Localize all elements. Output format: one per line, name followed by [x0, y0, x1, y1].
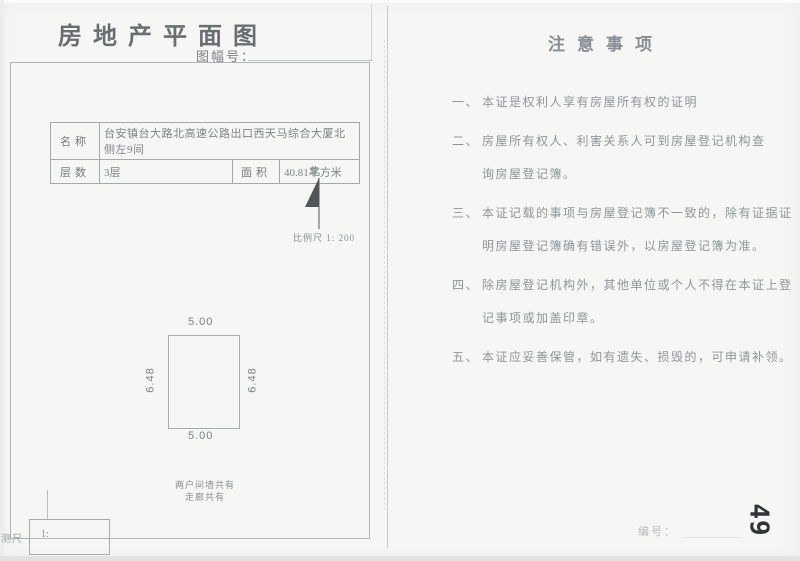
plan-note-line1: 两户间墙共有 — [150, 479, 260, 491]
sheet-number-blank-line — [248, 60, 372, 61]
note-text: 记事项或加盖印章。 — [482, 302, 788, 335]
note-text: 本证记载的事项与房屋登记簿不一致的，除有证据证 — [482, 197, 788, 230]
notes-list: 一、 本证是权利人享有房屋所有权的证明 二、 房屋所有权人、利害关系人可到房屋登… — [452, 86, 788, 380]
plot-dimension-right: 6.48 — [247, 367, 259, 392]
north-arrow-icon — [297, 175, 337, 236]
scan-edge-bottom — [0, 556, 800, 561]
note-text: 本证应妥善保管，如有遗失、损毁的，可申请补领。 — [482, 341, 788, 374]
corner-label: 测尺 — [1, 530, 23, 545]
note-item-4: 四、 除房屋登记机构外，其他单位或个人不得在本证上登 记事项或加盖印章。 — [452, 269, 788, 335]
name-label: 名称 — [51, 123, 100, 160]
note-number: 三、 — [452, 197, 479, 230]
plot-rectangle — [168, 335, 240, 429]
page-fold-shadow — [384, 40, 386, 510]
note-text: 本证是权利人享有房屋所有权的证明 — [482, 86, 788, 119]
plot-dimension-top: 5.00 — [188, 316, 213, 328]
note-item-2: 二、 房屋所有权人、利害关系人可到房屋登记机构查 询房屋登记簿。 — [452, 125, 788, 191]
area-label: 面积 — [233, 160, 280, 184]
note-item-1: 一、 本证是权利人享有房屋所有权的证明 — [452, 86, 788, 119]
floors-label: 层数 — [51, 160, 100, 184]
name-value: 台安镇台大路北高速公路出口西天马综合大厦北侧左9间 — [100, 123, 360, 160]
serial-number-blank-line — [682, 537, 742, 538]
note-text: 房屋所有权人、利害关系人可到房屋登记机构查 — [482, 125, 788, 158]
scanned-document: 房地产平面图 图幅号： 名称 台安镇台大路北高速公路出口西天马综合大厦北侧左9间… — [0, 0, 800, 561]
plan-note-line2: 走廊共有 — [150, 491, 260, 503]
plot-dimension-bottom: 5.00 — [188, 430, 213, 442]
scan-edge-left — [0, 0, 4, 561]
note-number: 一、 — [452, 86, 479, 119]
scan-artifact-line — [371, 4, 372, 60]
plan-note: 两户间墙共有 走廊共有 — [150, 479, 260, 503]
note-item-5: 五、 本证应妥善保管，如有遗失、损毁的，可申请补领。 — [452, 341, 788, 374]
note-item-3: 三、 本证记载的事项与房屋登记簿不一致的，除有证据证 明房屋登记簿确有错误外，以… — [452, 197, 788, 263]
scale-label: 比例尺 1: 200 — [293, 231, 355, 244]
note-number: 四、 — [452, 269, 479, 302]
table-row-name: 名称 台安镇台大路北高速公路出口西天马综合大厦北侧左9间 — [51, 123, 360, 160]
note-text: 询房屋登记簿。 — [482, 158, 788, 191]
serial-number-label: 编号： — [638, 523, 677, 539]
corner-tick-line — [47, 490, 48, 519]
floors-value: 3层 — [100, 160, 233, 184]
page-fold-line — [387, 6, 388, 548]
plot-dimension-left: 6.48 — [145, 367, 157, 392]
scan-edge-top — [0, 0, 800, 3]
note-text: 明房屋登记簿确有错误外，以房屋登记簿为准。 — [482, 230, 788, 263]
corner-value: 1: — [41, 529, 49, 540]
page-number: 49 — [744, 503, 774, 536]
note-text: 除房屋登记机构外，其他单位或个人不得在本证上登 — [482, 269, 788, 302]
notes-title: 注意事项 — [548, 30, 664, 55]
note-number: 五、 — [452, 341, 479, 374]
note-number: 二、 — [452, 125, 479, 158]
